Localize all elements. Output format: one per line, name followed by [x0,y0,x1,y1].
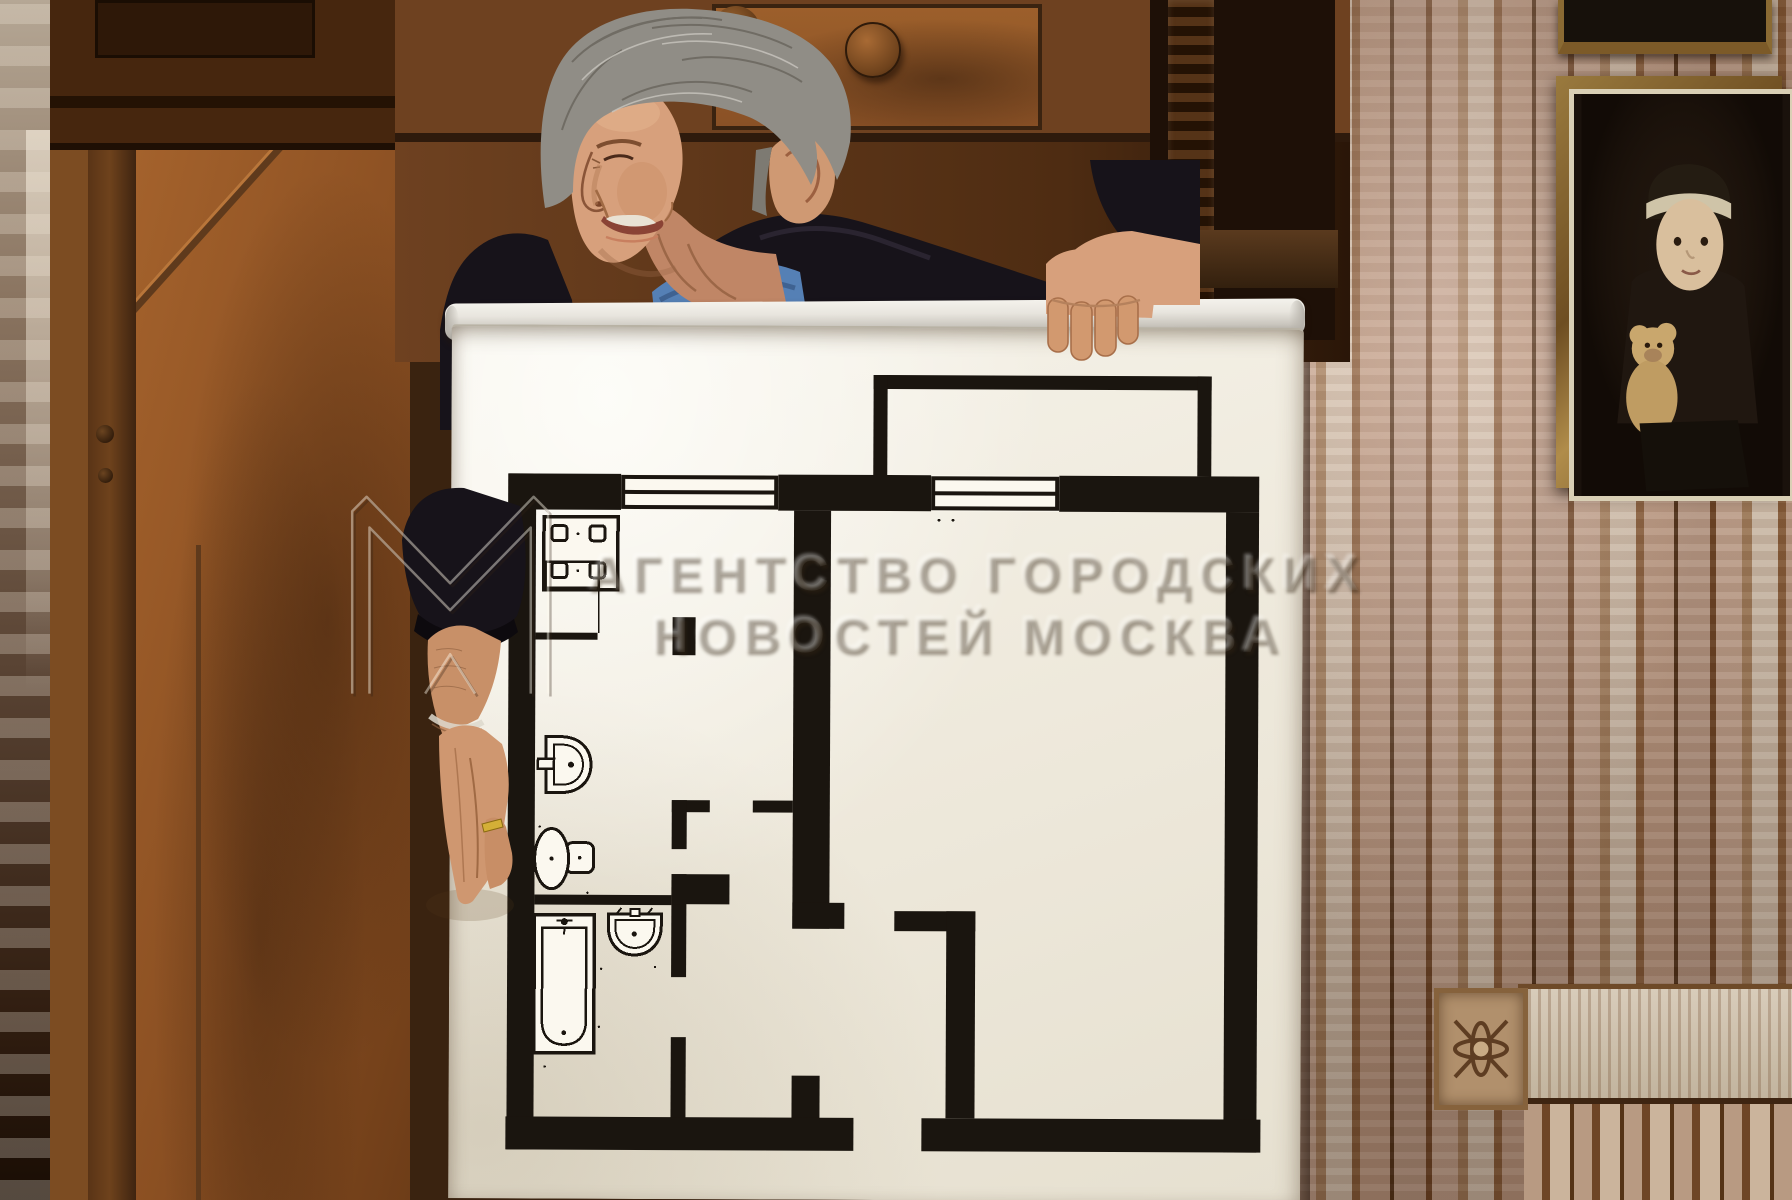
child-with-teddy-portrait [1574,94,1790,496]
stage-left-highlight [26,130,50,690]
door-stile [88,145,136,1200]
washbasin-icon [608,908,661,955]
portrait-mat [1569,89,1792,501]
stage-photo-scene: АГЕНТСТВО ГОРОДСКИХ НОВОСТЕЙ МОСКВА [0,0,1792,1200]
picture-frame-top [1558,0,1772,54]
window-icon [621,474,778,511]
carved-rosette [1434,988,1528,1110]
picture-frame-child-portrait [1556,76,1782,488]
pointing-arm [388,420,598,980]
window-icon [931,475,1059,512]
door-hinge-bolt [96,425,114,443]
wardrobe-door-panel [136,145,410,1200]
vertical-slats [1524,1104,1792,1200]
sideburn [752,147,772,216]
door-hinge-bolt [98,468,113,483]
door-seam [196,545,201,1200]
horizontal-plank [1518,984,1792,1104]
wardrobe-beam [1193,230,1338,288]
plan-walls [505,373,1263,1152]
hand-gripping-rail [960,160,1200,400]
plan-speckles [537,517,954,1069]
cornice-groove [50,96,410,108]
cornice-panel [95,0,315,58]
